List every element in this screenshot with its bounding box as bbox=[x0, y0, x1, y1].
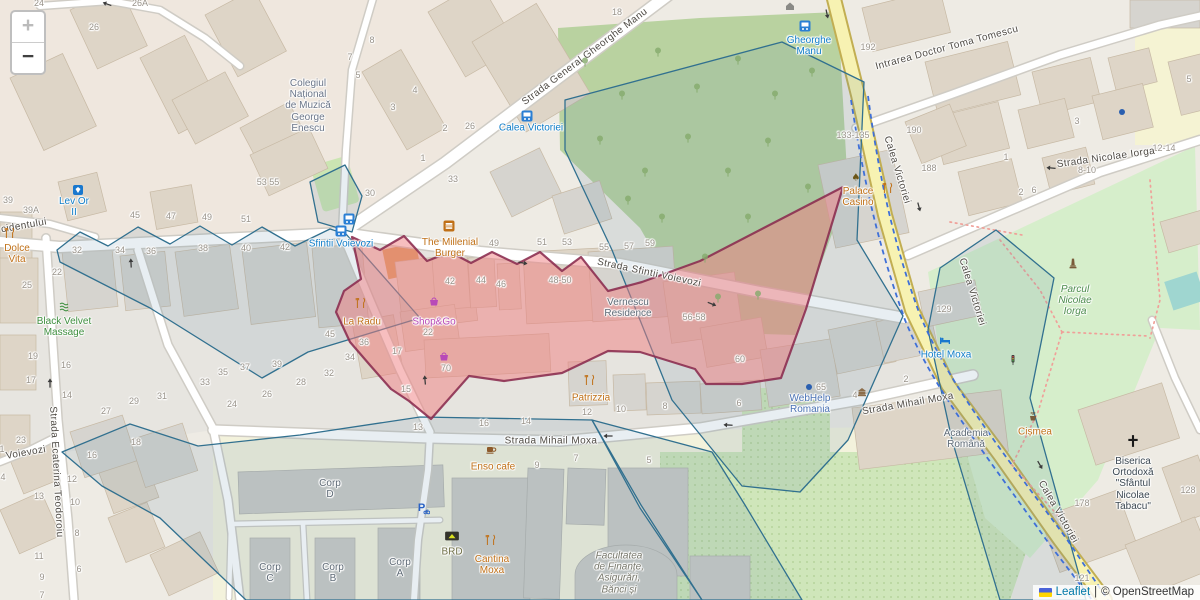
poi-label: Shop&Go bbox=[412, 316, 455, 327]
house-number: 12-14 bbox=[1152, 143, 1175, 153]
house-number: 6 bbox=[736, 398, 741, 408]
tree-icon bbox=[752, 289, 764, 301]
house-number: 60 bbox=[735, 354, 745, 364]
openstreetmap-link[interactable]: © OpenStreetMap bbox=[1101, 586, 1194, 598]
house-number: 1 bbox=[420, 153, 425, 163]
house-number: 24 bbox=[227, 399, 237, 409]
house-number: 133-135 bbox=[836, 130, 869, 140]
fork-icon bbox=[485, 534, 497, 546]
street-label: Strada Mihail Moxa bbox=[861, 390, 954, 417]
house-number: 28 bbox=[296, 377, 306, 387]
house-number: 19 bbox=[28, 351, 38, 361]
house-number: 25 bbox=[22, 280, 32, 290]
house-number: 3 bbox=[390, 102, 395, 112]
oneway-arrow-icon bbox=[912, 200, 925, 213]
house-number: 53 bbox=[562, 237, 572, 247]
fork-icon bbox=[584, 374, 596, 386]
house-number: 6 bbox=[1031, 185, 1036, 195]
massage-icon bbox=[58, 300, 70, 312]
house-number: 22 bbox=[423, 327, 433, 337]
oneway-arrow-icon bbox=[1045, 162, 1057, 174]
oneway-arrow-icon bbox=[517, 257, 530, 270]
house-number: 26 bbox=[465, 121, 475, 131]
oneway-arrow-icon bbox=[1032, 457, 1047, 472]
house-number: 16 bbox=[87, 450, 97, 460]
house-number: 46 bbox=[496, 279, 506, 289]
oneway-arrow-icon bbox=[722, 419, 734, 431]
poi-label: Dolce Vita bbox=[4, 243, 30, 265]
bus-icon bbox=[799, 20, 811, 32]
poi-label: Corp A bbox=[389, 557, 411, 579]
house-number: 3 bbox=[1074, 116, 1079, 126]
tree-icon bbox=[699, 252, 711, 264]
street-label: Calea Victoriei bbox=[881, 135, 912, 205]
house-number: 13 bbox=[413, 422, 423, 432]
house-number: 26 bbox=[89, 22, 99, 32]
house-number: 47 bbox=[166, 211, 176, 221]
house-number: 57 bbox=[624, 241, 634, 251]
house-number: 2 bbox=[903, 374, 908, 384]
house-number: 7 bbox=[573, 453, 578, 463]
tree-icon bbox=[769, 89, 781, 101]
house-number: 22 bbox=[52, 267, 62, 277]
museum-icon bbox=[856, 386, 868, 398]
house-number: 49 bbox=[202, 212, 212, 222]
house-number: 18 bbox=[131, 437, 141, 447]
house-number: 14 bbox=[521, 416, 531, 426]
house-number: 7 bbox=[347, 52, 352, 62]
house-number: 45 bbox=[130, 210, 140, 220]
poi-label: Vernescu Residence bbox=[604, 297, 651, 319]
house-number: 51 bbox=[537, 237, 547, 247]
house-number: 26 bbox=[262, 389, 272, 399]
house-number: 36 bbox=[359, 337, 369, 347]
house-number: 4 bbox=[0, 472, 5, 482]
house-number: 1 bbox=[0, 444, 5, 454]
house-number: 23 bbox=[16, 435, 26, 445]
house-number: 18 bbox=[612, 7, 622, 17]
oneway-arrow-icon bbox=[419, 374, 431, 386]
poi-label: Black Velvet Massage bbox=[37, 316, 91, 338]
poi-label: BRD bbox=[441, 546, 462, 557]
house-number: 190 bbox=[906, 125, 921, 135]
house-number: 192 bbox=[860, 42, 875, 52]
monument-icon bbox=[1067, 258, 1080, 271]
house-number: 42 bbox=[280, 242, 290, 252]
house-number: 128 bbox=[1180, 485, 1195, 495]
house-number: 35 bbox=[218, 367, 228, 377]
fork-icon bbox=[4, 227, 16, 239]
tree-icon bbox=[732, 54, 744, 66]
tree-icon bbox=[639, 166, 651, 178]
house-number: 32 bbox=[324, 368, 334, 378]
house-number: 26A bbox=[132, 0, 148, 8]
attribution-separator: | bbox=[1094, 586, 1097, 598]
house-number: 8 bbox=[74, 528, 79, 538]
house-number: 34 bbox=[345, 352, 355, 362]
house-number: 65 bbox=[816, 382, 826, 392]
street-label: Strada Ecaterina Teodoroiu bbox=[47, 406, 65, 538]
cross-icon bbox=[1126, 434, 1140, 448]
tree-icon bbox=[806, 66, 818, 78]
house-number: 53 55 bbox=[257, 177, 280, 187]
house-number: 10 bbox=[616, 404, 626, 414]
casino-icon bbox=[850, 171, 862, 183]
house-number: 30 bbox=[365, 188, 375, 198]
zoom-in-button[interactable]: + bbox=[12, 12, 44, 43]
house-number: 27 bbox=[101, 406, 111, 416]
tree-icon bbox=[762, 136, 774, 148]
house-number: 5 bbox=[646, 455, 651, 465]
poi-label: Academia Română bbox=[944, 428, 988, 450]
bus-icon bbox=[343, 213, 355, 225]
house-number: 6 bbox=[76, 564, 81, 574]
poi-label: Colegiul Național de Muzică George Enesc… bbox=[285, 78, 331, 134]
poi-label: Lev Or II bbox=[59, 196, 89, 218]
traffic-icon bbox=[1008, 355, 1019, 366]
house-number: 51 bbox=[241, 214, 251, 224]
tree-icon bbox=[622, 194, 634, 206]
house-number: 39 bbox=[272, 359, 282, 369]
poi-label: Gheorghe Manu bbox=[787, 35, 831, 57]
street-label: Strada Sfintii Voievozi bbox=[596, 257, 702, 290]
house-number: 5 bbox=[1186, 74, 1191, 84]
basket-icon bbox=[428, 295, 440, 307]
fork-icon bbox=[355, 297, 367, 309]
house-number: 9 bbox=[534, 460, 539, 470]
poi-label: Facultatea de Finanțe, Asigurări, Bănci … bbox=[594, 551, 644, 596]
poi-label: Patrizzia bbox=[572, 392, 610, 403]
street-label: Intrarea Doctor Toma Tomescu bbox=[874, 24, 1019, 73]
zoom-out-button[interactable]: − bbox=[12, 43, 44, 73]
house-number: 16 bbox=[479, 418, 489, 428]
house-number: 31 bbox=[157, 391, 167, 401]
tree-icon bbox=[682, 132, 694, 144]
poi-label: Corp B bbox=[322, 562, 344, 584]
poi-label: Cantina Moxa bbox=[475, 554, 509, 576]
house-number: 39A bbox=[23, 205, 39, 215]
house-number: 17 bbox=[26, 375, 36, 385]
house-number: 178 bbox=[1074, 498, 1089, 508]
house-number: 29 bbox=[129, 396, 139, 406]
oneway-arrow-icon bbox=[100, 0, 114, 11]
house-number: 40 bbox=[241, 243, 251, 253]
house-number: 5 bbox=[355, 70, 360, 80]
poi-label: Cișmea bbox=[1018, 426, 1052, 437]
basket-icon bbox=[438, 350, 450, 362]
poi-label: Biserica Ortodoxă "Sfântul Nicolae Tabac… bbox=[1112, 456, 1153, 512]
house-number: 129 bbox=[936, 304, 951, 314]
tree-icon bbox=[802, 182, 814, 194]
gem-icon bbox=[72, 184, 84, 196]
house-number: 7 bbox=[39, 590, 44, 600]
zoom-control: + − bbox=[10, 10, 46, 75]
poi-label: Corp D bbox=[319, 478, 341, 500]
poi-label: WebHelp Romania bbox=[790, 393, 831, 415]
house-number: 15 bbox=[401, 384, 411, 394]
poi-label: Corp C bbox=[259, 562, 281, 584]
poi-label: The Millenial Burger bbox=[422, 237, 478, 259]
poi-label: Enso cafe bbox=[471, 461, 515, 472]
poi-label: Calea Victoriei bbox=[499, 122, 563, 133]
house-number: 8-10 bbox=[1078, 165, 1096, 175]
poi-label: Parcul Nicolae Iorga bbox=[1058, 284, 1091, 318]
house-number: 44 bbox=[476, 275, 486, 285]
house-number: 37 bbox=[240, 362, 250, 372]
house-number: 39 bbox=[3, 195, 13, 205]
house-number: 34 bbox=[115, 245, 125, 255]
house-number: 48-50 bbox=[548, 275, 571, 285]
brd-icon bbox=[445, 529, 460, 544]
house-number: 9 bbox=[39, 572, 44, 582]
house-number: 12 bbox=[582, 407, 592, 417]
house-number: 45 bbox=[325, 329, 335, 339]
map-labels-layer: 242626A87531842261333053 553939A45474951… bbox=[0, 0, 1200, 600]
house-number: 33 bbox=[448, 174, 458, 184]
house-number: 11 bbox=[34, 551, 43, 561]
oneway-arrow-icon bbox=[820, 7, 833, 20]
house-number: 2 bbox=[1018, 187, 1023, 197]
poi-label: Hotel Moxa bbox=[921, 349, 972, 360]
map-canvas[interactable]: ♠ P bbox=[0, 0, 1200, 600]
parking-icon bbox=[416, 501, 430, 515]
tree-icon bbox=[742, 212, 754, 224]
house-number: 4 bbox=[412, 85, 417, 95]
house-number: 8 bbox=[662, 401, 667, 411]
house-number: 13 bbox=[34, 491, 44, 501]
house-number: 121 bbox=[1074, 573, 1089, 583]
ukraine-flag-icon bbox=[1039, 588, 1052, 597]
leaflet-link[interactable]: Leaflet bbox=[1056, 586, 1091, 598]
house-number: 42 bbox=[445, 276, 455, 286]
street-label: Calea Victoriei bbox=[1036, 479, 1081, 545]
house-number: 38 bbox=[198, 243, 208, 253]
oneway-arrow-icon bbox=[125, 257, 137, 269]
tree-icon bbox=[652, 46, 664, 58]
house-number: 59 bbox=[645, 238, 655, 248]
dot-icon bbox=[803, 381, 815, 393]
bus-icon bbox=[335, 225, 347, 237]
house-number: 1 bbox=[1003, 152, 1008, 162]
bed-icon bbox=[939, 334, 951, 346]
tree-icon bbox=[616, 89, 628, 101]
tree-icon bbox=[722, 166, 734, 178]
house-number: 16 bbox=[61, 360, 71, 370]
street-label: Strada Nicolae Iorga bbox=[1056, 146, 1156, 171]
house-number: 49 bbox=[489, 238, 499, 248]
house-number: 10 bbox=[70, 497, 80, 507]
house-number: 70 bbox=[441, 363, 451, 373]
house-number: 24 bbox=[34, 0, 44, 8]
house-number: 12 bbox=[67, 474, 77, 484]
house-number: 14 bbox=[62, 390, 72, 400]
poi-label: Sfintii Voievozi bbox=[309, 238, 373, 249]
house-number: 56-58 bbox=[682, 312, 705, 322]
oneway-arrow-icon bbox=[603, 431, 614, 442]
poi-label: Palace Casino bbox=[842, 186, 873, 208]
street-label: Calea Victoriei bbox=[956, 257, 987, 327]
house-number: 188 bbox=[921, 163, 936, 173]
bus-icon bbox=[521, 110, 533, 122]
tree-icon bbox=[691, 82, 703, 94]
house-number: 2 bbox=[442, 123, 447, 133]
street-label: Voievozi bbox=[5, 444, 47, 462]
oneway-arrow-icon bbox=[45, 378, 56, 389]
tree-icon bbox=[579, 56, 591, 68]
dot-icon bbox=[1116, 106, 1128, 118]
burger-icon bbox=[443, 220, 455, 232]
house-number: 17 bbox=[392, 346, 402, 356]
house-number: 33 bbox=[200, 377, 210, 387]
cup-icon bbox=[485, 444, 497, 456]
attribution-bar: Leaflet | © OpenStreetMap bbox=[1033, 585, 1200, 600]
house-number: 55 bbox=[599, 242, 609, 252]
street-label: Strada Mihail Moxa bbox=[505, 435, 598, 446]
house-number: 36 bbox=[146, 246, 156, 256]
home-icon bbox=[784, 0, 796, 12]
fork-icon bbox=[882, 182, 894, 194]
house-number: 8 bbox=[369, 35, 374, 45]
house-number: 32 bbox=[72, 245, 82, 255]
tree-icon bbox=[656, 212, 668, 224]
tree-icon bbox=[594, 134, 606, 146]
fountain-icon bbox=[1027, 410, 1039, 422]
poi-label: La Radu bbox=[343, 316, 381, 327]
